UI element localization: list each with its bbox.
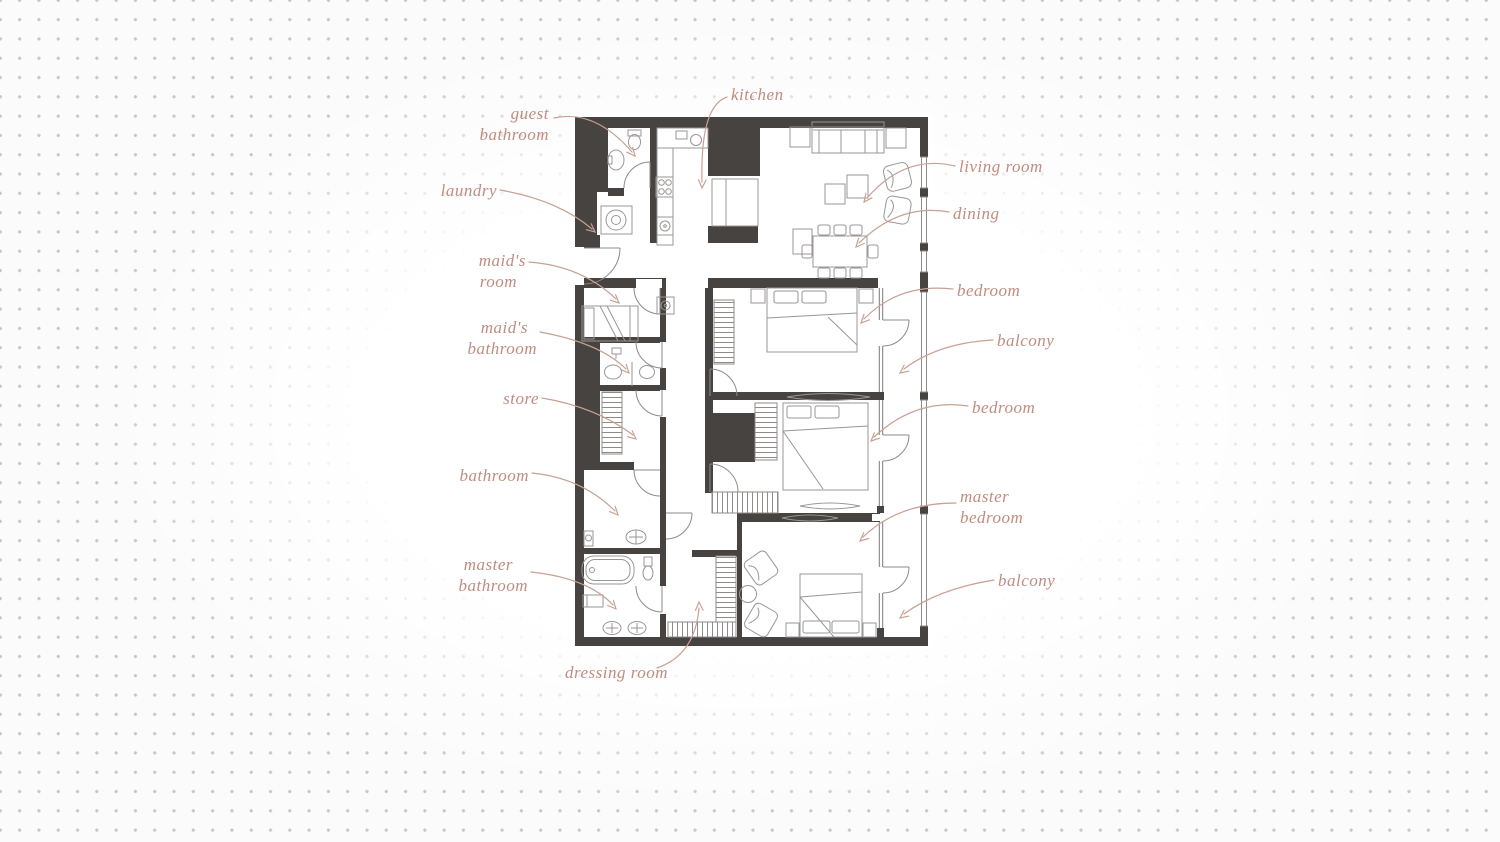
label-maids-bathroom: maid's xyxy=(481,318,528,337)
svg-text:bedroom: bedroom xyxy=(960,508,1023,527)
label-maids-room: maid's xyxy=(479,251,526,270)
label-dressing-room: dressing room xyxy=(565,663,668,682)
label-balcony-2: balcony xyxy=(998,571,1055,590)
page: { "meta": { "title": "apartment floor pl… xyxy=(0,0,1500,842)
label-bathroom: bathroom xyxy=(460,466,530,485)
label-balcony-1: balcony xyxy=(997,331,1054,350)
label-bedroom-1: bedroom xyxy=(957,281,1020,300)
label-living-room: living room xyxy=(959,157,1043,176)
floor-plan: kitchen guest bathroom laundry maid's ro… xyxy=(0,0,1500,842)
windows xyxy=(920,157,928,626)
label-guest-bathroom: guest xyxy=(511,104,550,123)
label-master-bathroom: master xyxy=(464,555,513,574)
svg-text:bathroom: bathroom xyxy=(468,339,538,358)
label-dining: dining xyxy=(953,204,999,223)
svg-text:bathroom: bathroom xyxy=(480,125,550,144)
label-laundry: laundry xyxy=(441,181,497,200)
svg-text:bathroom: bathroom xyxy=(459,576,529,595)
label-master-bedroom: master xyxy=(960,487,1009,506)
label-kitchen: kitchen xyxy=(731,85,784,104)
label-bedroom-2: bedroom xyxy=(972,398,1035,417)
svg-text:room: room xyxy=(480,272,517,291)
label-store: store xyxy=(503,389,539,408)
plan-floor xyxy=(572,114,932,649)
